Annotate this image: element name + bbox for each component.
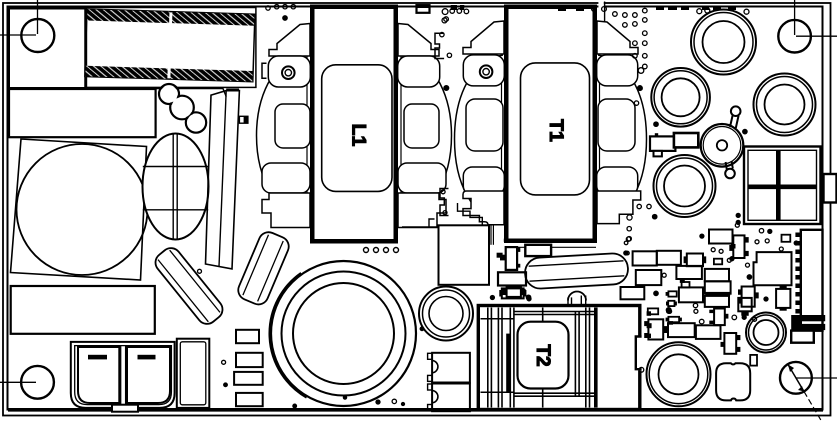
svg-text:L1: L1 — [348, 124, 370, 147]
svg-text:T1: T1 — [545, 119, 567, 142]
svg-text:T2: T2 — [532, 344, 553, 366]
